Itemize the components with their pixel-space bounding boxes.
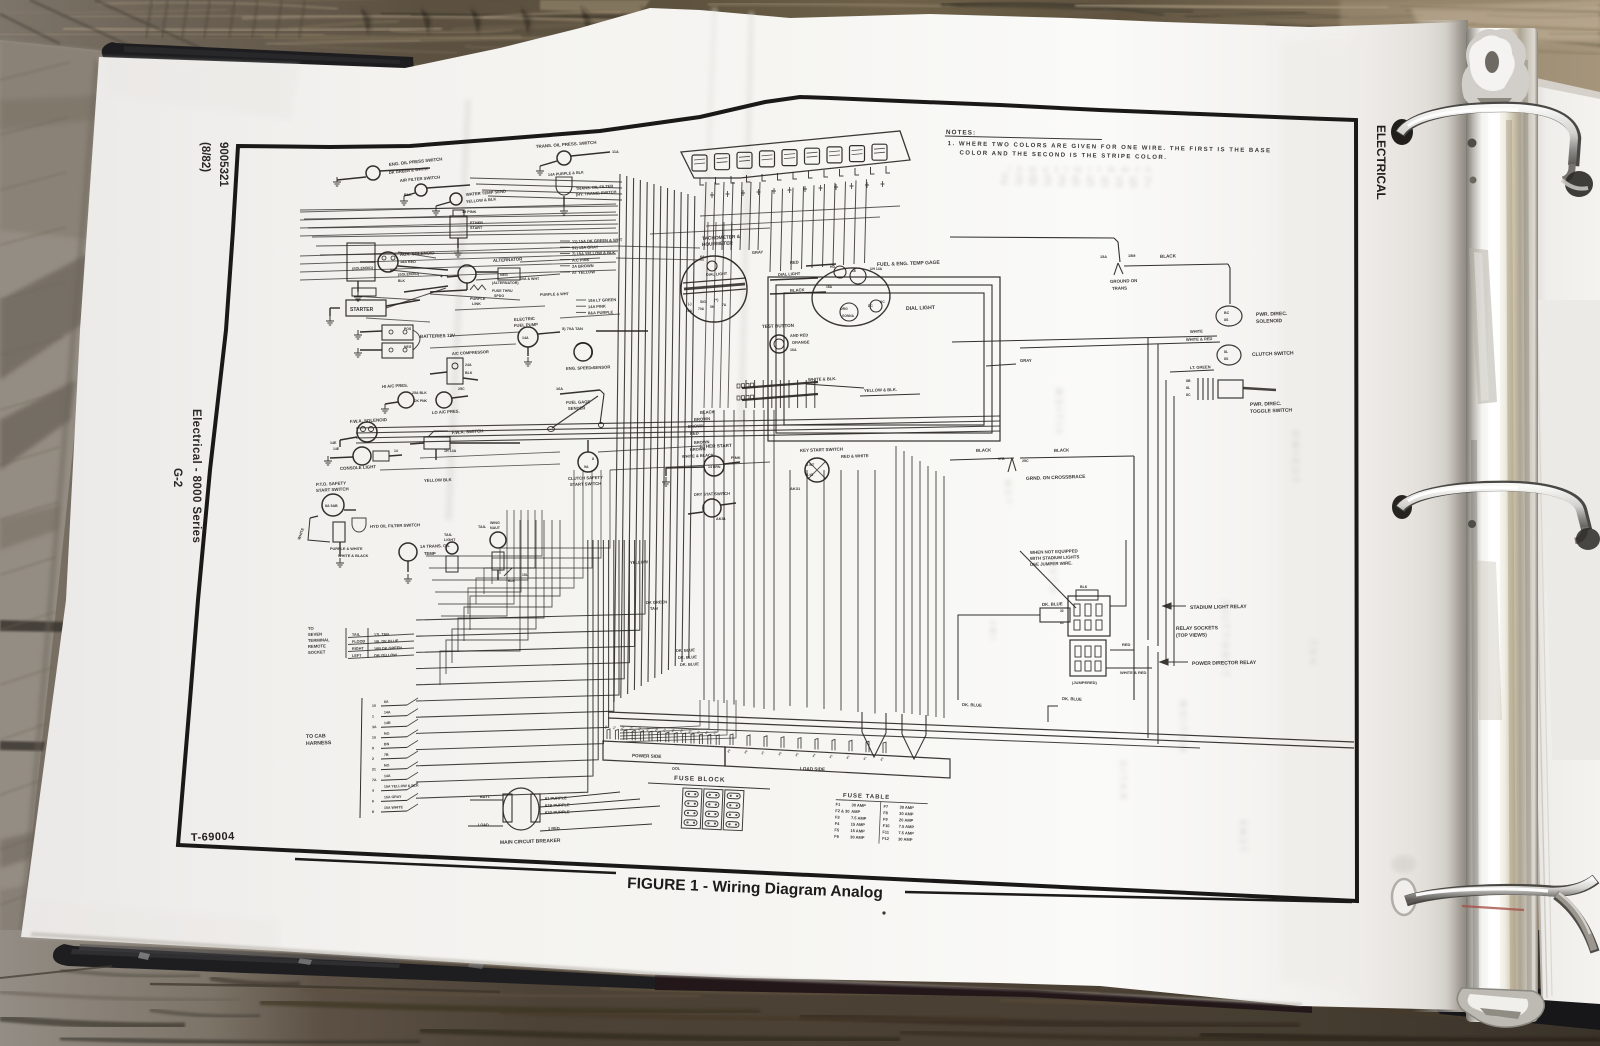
svg-text:15A WHITE: 15A WHITE bbox=[384, 805, 404, 810]
svg-text:DK PNK: DK PNK bbox=[414, 399, 428, 403]
svg-text:5) 70A TAN: 5) 70A TAN bbox=[562, 326, 583, 331]
svg-text:BLACK: BLACK bbox=[1054, 447, 1070, 453]
svg-text:RED: RED bbox=[1122, 642, 1131, 647]
svg-text:KC: KC bbox=[880, 300, 885, 304]
svg-text:TAIL: TAIL bbox=[478, 525, 487, 529]
svg-text:GROUND ON: GROUND ON bbox=[1110, 278, 1137, 284]
svg-text:DK GREEN: DK GREEN bbox=[646, 599, 667, 605]
svg-text:9005321: 9005321 bbox=[217, 142, 229, 187]
svg-text:15M: 15M bbox=[1128, 254, 1135, 258]
svg-text:DK. BLUE: DK. BLUE bbox=[680, 661, 699, 667]
svg-text:8: 8 bbox=[372, 810, 374, 814]
svg-text:TRA: TRA bbox=[1308, 640, 1318, 668]
svg-text:14A: 14A bbox=[384, 710, 391, 714]
svg-text:14A: 14A bbox=[384, 774, 391, 778]
svg-text:SENDER: SENDER bbox=[568, 405, 586, 411]
svg-text:PINK: PINK bbox=[731, 455, 741, 460]
svg-text:F2 & 30: F2 & 30 bbox=[835, 808, 850, 814]
svg-text:10: 10 bbox=[372, 704, 376, 708]
svg-text:OMI8UT: OMI8UT bbox=[1289, 430, 1300, 486]
svg-text:GONNA: GONNA bbox=[842, 314, 855, 318]
svg-text:8C: 8C bbox=[1186, 393, 1191, 397]
svg-text:DK. BLUE: DK. BLUE bbox=[962, 702, 982, 708]
svg-text:20 AMP: 20 AMP bbox=[899, 817, 914, 823]
svg-text:(8/82): (8/82) bbox=[199, 142, 211, 172]
svg-text:10A: 10A bbox=[686, 309, 693, 313]
svg-text:LINK: LINK bbox=[472, 302, 481, 306]
svg-text:6A: 6A bbox=[384, 700, 389, 704]
svg-text:SIG.: SIG. bbox=[700, 300, 707, 304]
svg-text:25C: 25C bbox=[458, 387, 465, 391]
svg-text:(-): (-) bbox=[688, 302, 692, 306]
svg-text:19A LT GREEN: 19A LT GREEN bbox=[588, 297, 616, 303]
svg-text:SEVEN: SEVEN bbox=[308, 632, 322, 637]
svg-text:GRAY: GRAY bbox=[752, 249, 764, 255]
svg-text:AT YELLOW: AT YELLOW bbox=[572, 269, 596, 275]
svg-text:24A: 24A bbox=[465, 363, 472, 367]
svg-text:4: 4 bbox=[372, 789, 374, 793]
svg-text:1H 14A: 1H 14A bbox=[444, 449, 457, 453]
svg-text:7B: 7B bbox=[384, 753, 389, 757]
svg-text:SOCKET: SOCKET bbox=[308, 649, 326, 655]
svg-text:30 AMP: 30 AMP bbox=[899, 804, 914, 810]
svg-text:LOAD SIDE: LOAD SIDE bbox=[800, 766, 825, 772]
svg-text:AND RED: AND RED bbox=[790, 332, 808, 338]
svg-text:(+): (+) bbox=[714, 298, 718, 302]
svg-text:STADIUM LIGHT RELAY: STADIUM LIGHT RELAY bbox=[1190, 604, 1247, 611]
svg-text:F12: F12 bbox=[882, 836, 890, 841]
svg-text:6: 6 bbox=[372, 799, 374, 803]
svg-text:7A: 7A bbox=[722, 303, 727, 307]
svg-text:8: 8 bbox=[592, 457, 594, 461]
svg-text:A.C PINK: A.C PINK bbox=[572, 257, 590, 263]
svg-text:16: 16 bbox=[852, 269, 856, 273]
svg-text:RED: RED bbox=[790, 260, 799, 265]
svg-text:BLACK: BLACK bbox=[700, 409, 715, 415]
svg-text:DK. BLUE: DK. BLUE bbox=[1042, 601, 1063, 607]
svg-text:BLACK: BLACK bbox=[976, 447, 992, 453]
svg-text:MOITI3: MOITI3 bbox=[1054, 388, 1064, 436]
svg-text:LT. GREEN: LT. GREEN bbox=[1190, 364, 1211, 370]
svg-text:DIAL LIGHT: DIAL LIGHT bbox=[906, 305, 936, 312]
svg-text:70A: 70A bbox=[698, 307, 705, 311]
svg-text:30 AMP: 30 AMP bbox=[850, 834, 865, 840]
svg-text:FUSE THRU: FUSE THRU bbox=[492, 289, 513, 293]
svg-text:14A: 14A bbox=[522, 336, 529, 340]
svg-text:TO CAB: TO CAB bbox=[306, 733, 326, 740]
svg-text:51) 15A GRAY: 51) 15A GRAY bbox=[572, 244, 599, 250]
svg-text:3MI: 3MI bbox=[988, 620, 997, 642]
svg-text:WHITE & RED: WHITE & RED bbox=[1186, 336, 1213, 342]
svg-text:DC: DC bbox=[868, 304, 873, 308]
svg-text:BLK: BLK bbox=[1080, 585, 1088, 589]
svg-text:NO: NO bbox=[384, 732, 390, 736]
svg-text:DK. BLUE: DK. BLUE bbox=[1062, 696, 1082, 702]
svg-text:3A: 3A bbox=[372, 725, 377, 729]
svg-text:WHITE & BLK.: WHITE & BLK. bbox=[808, 376, 837, 382]
svg-text:BLK: BLK bbox=[398, 279, 406, 283]
svg-text:15 AMP: 15 AMP bbox=[850, 828, 865, 834]
svg-text:BROWN: BROWN bbox=[694, 439, 710, 445]
svg-text:15 AMP: 15 AMP bbox=[851, 822, 866, 828]
svg-text:DK. BLUE: DK. BLUE bbox=[676, 647, 695, 653]
svg-text:10A & WHT: 10A & WHT bbox=[520, 277, 540, 281]
svg-text:PWR. DIREC.: PWR. DIREC. bbox=[1256, 311, 1288, 318]
svg-text:ELECTRICAL: ELECTRICAL bbox=[1374, 125, 1388, 200]
svg-text:16A: 16A bbox=[790, 348, 797, 352]
svg-text:POWER DIRECTOR RELAY: POWER DIRECTOR RELAY bbox=[1192, 660, 1257, 667]
svg-text:5K: 5K bbox=[710, 305, 715, 309]
svg-text:OITAR: OITAR bbox=[1118, 760, 1128, 802]
svg-text:7.5 AMP: 7.5 AMP bbox=[898, 830, 914, 836]
svg-text:15L: 15L bbox=[522, 573, 528, 577]
svg-text:21: 21 bbox=[372, 767, 376, 771]
svg-text:DK. BLUE: DK. BLUE bbox=[678, 654, 697, 660]
svg-text:8A 9AB: 8A 9AB bbox=[325, 504, 338, 508]
svg-text:HG: HG bbox=[830, 265, 835, 269]
svg-text:7.5 AMP: 7.5 AMP bbox=[899, 824, 915, 830]
svg-text:START: START bbox=[470, 226, 483, 230]
svg-text:16A: 16A bbox=[556, 387, 563, 391]
svg-text:BC: BC bbox=[1224, 311, 1230, 315]
svg-text:MUT: MUT bbox=[1003, 480, 1012, 506]
svg-text:NAUT: NAUT bbox=[490, 526, 501, 530]
svg-text:OOL: OOL bbox=[672, 767, 681, 771]
svg-text:RELAY SOCKETS: RELAY SOCKETS bbox=[1176, 625, 1219, 632]
svg-text:HARNESS: HARNESS bbox=[306, 740, 332, 747]
svg-text:TERMINAL: TERMINAL bbox=[308, 637, 330, 643]
svg-text:POS: POS bbox=[404, 327, 412, 331]
svg-text:6A: 6A bbox=[700, 255, 705, 259]
svg-text:YELLOW BLK: YELLOW BLK bbox=[424, 477, 452, 483]
svg-text:ihmuttmitmmrn: ihmuttmitmmrn bbox=[1008, 165, 1158, 174]
svg-text:BN: BN bbox=[384, 742, 390, 746]
svg-text:25C: 25C bbox=[1022, 459, 1029, 463]
svg-text:ORG: ORG bbox=[840, 307, 848, 311]
svg-text:14E: 14E bbox=[333, 447, 340, 451]
svg-text:2: 2 bbox=[372, 757, 374, 761]
svg-text:1: 1 bbox=[372, 715, 374, 719]
svg-text:8&A PURPLE: 8&A PURPLE bbox=[588, 310, 614, 316]
svg-text:7.5 AMP: 7.5 AMP bbox=[851, 815, 867, 821]
svg-text:BLACK: BLACK bbox=[790, 287, 805, 293]
svg-text:SOLENOID: SOLENOID bbox=[1256, 318, 1283, 325]
svg-text:F10: F10 bbox=[883, 823, 891, 828]
svg-text:WING: WING bbox=[490, 521, 500, 525]
svg-text:POWER SIDE: POWER SIDE bbox=[632, 753, 662, 759]
svg-text:PURPLE & WHITE: PURPLE & WHITE bbox=[330, 547, 363, 551]
svg-text:STARTER: STARTER bbox=[350, 307, 374, 313]
svg-text:LEFT: LEFT bbox=[352, 654, 362, 658]
svg-text:9: 9 bbox=[372, 746, 374, 750]
svg-text:9A: 9A bbox=[584, 465, 589, 469]
svg-text:AK31: AK31 bbox=[790, 486, 801, 491]
svg-text:TRANS: TRANS bbox=[1112, 285, 1127, 291]
svg-text:8M3T: 8M3T bbox=[1238, 820, 1248, 855]
svg-text:WHITE & BLACK: WHITE & BLACK bbox=[338, 554, 369, 558]
svg-text:AMP: AMP bbox=[851, 809, 860, 814]
svg-text:TAN: TAN bbox=[650, 606, 658, 611]
svg-text:RED & WHITE: RED & WHITE bbox=[841, 453, 869, 459]
svg-text:14E: 14E bbox=[330, 441, 337, 445]
svg-text:30 AMP: 30 AMP bbox=[898, 836, 913, 842]
svg-text:TEMP: TEMP bbox=[424, 551, 436, 556]
svg-text:14A PINK: 14A PINK bbox=[588, 304, 606, 310]
svg-text:T-69004: T-69004 bbox=[191, 830, 236, 844]
svg-text:15A GRAY: 15A GRAY bbox=[384, 795, 402, 800]
svg-text:8S: 8S bbox=[1224, 318, 1229, 322]
svg-text:30: 30 bbox=[1060, 609, 1064, 613]
svg-text:LIGHT: LIGHT bbox=[444, 538, 456, 542]
svg-text:TAIL: TAIL bbox=[352, 633, 361, 637]
svg-text:8S: 8S bbox=[1224, 357, 1229, 361]
svg-text:Electrical - 8000 Series: Electrical - 8000 Series bbox=[190, 409, 202, 543]
svg-text:(TOP VIEWS): (TOP VIEWS) bbox=[1176, 632, 1207, 639]
svg-text:11A: 11A bbox=[612, 150, 619, 154]
svg-text:15A: 15A bbox=[1100, 255, 1107, 259]
svg-text:(ALTERNATOR): (ALTERNATOR) bbox=[492, 281, 519, 285]
svg-text:BROWN: BROWN bbox=[690, 446, 706, 452]
svg-text:(JUMPERED): (JUMPERED) bbox=[1072, 680, 1098, 685]
svg-text:PWR. DIREC.: PWR. DIREC. bbox=[1250, 401, 1282, 408]
svg-text:F11: F11 bbox=[882, 829, 890, 834]
svg-text:7A: 7A bbox=[372, 778, 377, 782]
svg-text:YELLOW: YELLOW bbox=[630, 559, 648, 565]
svg-text:30 AMP: 30 AMP bbox=[899, 811, 914, 817]
svg-text:NEG: NEG bbox=[404, 345, 412, 349]
svg-text:3A BROWN: 3A BROWN bbox=[572, 263, 594, 269]
svg-text:BLACK: BLACK bbox=[1160, 253, 1177, 259]
svg-text:WHITE & RED: WHITE & RED bbox=[1120, 670, 1147, 675]
svg-text:REMOTE: REMOTE bbox=[308, 643, 326, 649]
svg-text:8B: 8B bbox=[1186, 379, 1191, 383]
svg-text:FUEL GAGE: FUEL GAGE bbox=[566, 399, 591, 405]
svg-text:MOITOM: MOITOM bbox=[1178, 700, 1188, 755]
svg-text:BATT.: BATT. bbox=[480, 795, 491, 799]
svg-text:3JITTO8HT: 3JITTO8HT bbox=[1219, 600, 1230, 680]
svg-text:GRAY: GRAY bbox=[1020, 358, 1032, 363]
svg-text:16A: 16A bbox=[826, 285, 833, 289]
svg-text:25A BLK: 25A BLK bbox=[412, 391, 427, 395]
svg-text:SPDO: SPDO bbox=[494, 294, 504, 298]
svg-text:NO: NO bbox=[384, 763, 390, 767]
svg-text:14B: 14B bbox=[384, 721, 391, 725]
svg-text:NOTES:: NOTES: bbox=[946, 129, 976, 137]
svg-text:WHITE: WHITE bbox=[1190, 329, 1203, 334]
svg-text:TO: TO bbox=[308, 626, 315, 631]
svg-text:10: 10 bbox=[372, 736, 376, 740]
svg-text:BLK: BLK bbox=[465, 371, 473, 375]
svg-text:17B: 17B bbox=[998, 457, 1005, 461]
svg-text:30 AMP: 30 AMP bbox=[851, 802, 866, 808]
svg-text:14: 14 bbox=[394, 449, 398, 453]
svg-text:ORANGE: ORANGE bbox=[792, 339, 810, 345]
svg-text:TAIL: TAIL bbox=[444, 533, 453, 537]
svg-text:G-2: G-2 bbox=[171, 468, 183, 487]
